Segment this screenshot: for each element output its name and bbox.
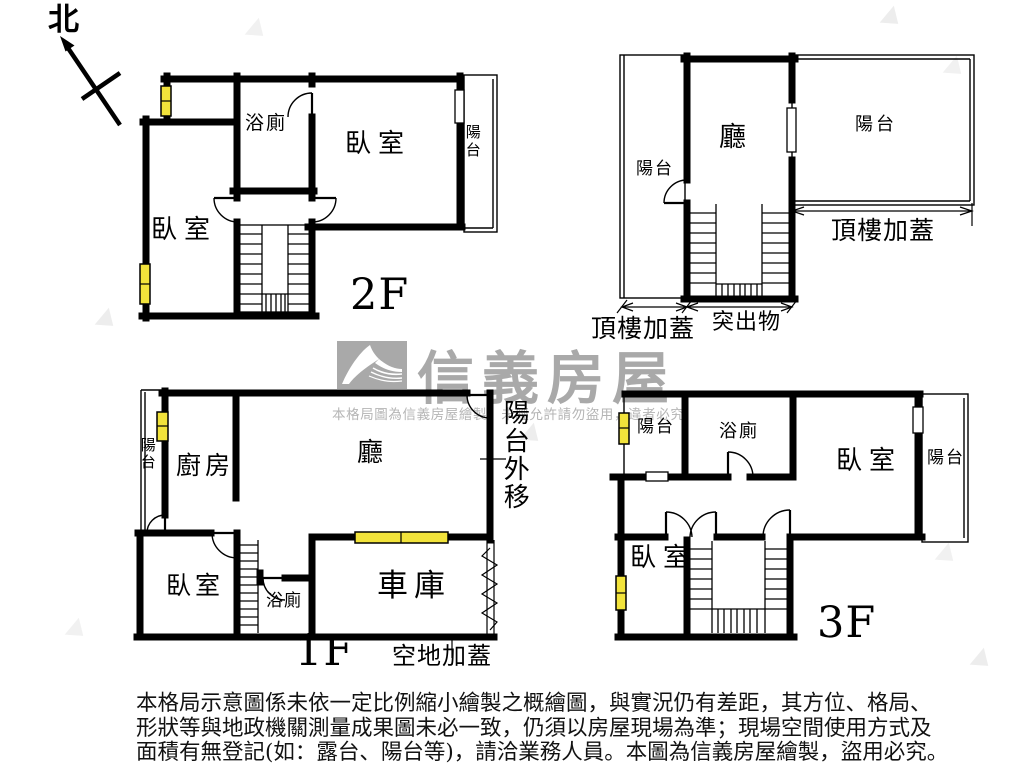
disclaimer-line-1: 本格局示意圖係未依一定比例縮小繪製之概繪圖，與實況仍有差距，其方位、格局、 xyxy=(136,692,948,717)
rooftop-hall-label: 廳 xyxy=(719,124,746,152)
rooftop-addition-left-label: 頂樓加蓋 xyxy=(591,316,695,342)
floor3-bedroom-main-label: 臥室 xyxy=(836,448,902,475)
floor1-balcony-shift-label: 陽台外移 xyxy=(500,399,527,511)
floor1-hall-label: 廳 xyxy=(357,440,383,467)
rooftop-balcony-right-label: 陽台 xyxy=(855,116,897,135)
floor3-balcony-left-label: 陽台 xyxy=(637,419,675,437)
floor1-tag: 1F xyxy=(295,629,354,674)
rooftop-addition-right-label: 頂樓加蓋 xyxy=(831,218,935,244)
disclaimer-text: 本格局示意圖係未依一定比例縮小繪製之概繪圖，與實況仍有差距，其方位、格局、 形狀… xyxy=(136,692,948,766)
north-label: 北 xyxy=(48,4,79,37)
rooftop-stairs xyxy=(688,204,790,299)
floor1-stairs xyxy=(240,540,258,633)
background-watermark-mark xyxy=(245,18,271,44)
floor1-garage-label: 車庫 xyxy=(377,570,451,603)
disclaimer-line-3: 面積有無登記(如：露台、陽台等)，請洽業務人員。本圖為信義房屋繪製，盜用必究。 xyxy=(136,741,948,766)
floor1-kitchen-label: 廚房 xyxy=(176,453,234,479)
floor2-balcony-label: 陽台 xyxy=(464,124,480,160)
floor3-balcony-right-label: 陽台 xyxy=(927,450,965,468)
floor3-bedroom-left-label: 臥室 xyxy=(630,545,696,572)
rooftop-balcony-left-label: 陽台 xyxy=(636,161,674,179)
floor2-plan xyxy=(130,60,510,335)
rooftop-plan xyxy=(590,50,985,350)
floor1-garage-side xyxy=(452,459,506,658)
floor2-bedroom-left-label: 臥室 xyxy=(151,217,217,244)
floor1-balcony-label: 陽台 xyxy=(139,437,155,471)
floor3-bath-label: 浴廁 xyxy=(719,423,759,442)
rooftop-protrusion-label: 突出物 xyxy=(712,311,781,334)
floor1-bedroom-label: 臥室 xyxy=(166,573,224,599)
floor2-bath-label: 浴廁 xyxy=(245,114,287,134)
background-watermark-mark xyxy=(95,308,121,334)
floor2-walls xyxy=(142,76,462,318)
floor3-stairs xyxy=(687,541,790,633)
background-watermark-mark xyxy=(65,618,91,644)
floor2-stairs xyxy=(238,225,312,312)
floor3-tag: 3F xyxy=(817,601,876,646)
floor1-bath-label: 浴廁 xyxy=(266,593,302,611)
floor2-bedroom-main-label: 臥室 xyxy=(345,131,411,158)
background-watermark-mark xyxy=(880,6,906,32)
rooftop-hall-window xyxy=(787,108,796,152)
disclaimer-line-2: 形狀等與地政機關測量成果圖未必一致，仍須以房屋現場為準；現場空間使用方式及 xyxy=(136,717,948,742)
floor2-tag: 2F xyxy=(350,273,409,318)
floor1-ground-addition-label: 空地加蓋 xyxy=(392,644,492,669)
floorplan-sheet: 信義房屋 本格局圖為信義房屋繪製，未經允許請勿盜用，違者必究 北 xyxy=(0,0,1024,768)
